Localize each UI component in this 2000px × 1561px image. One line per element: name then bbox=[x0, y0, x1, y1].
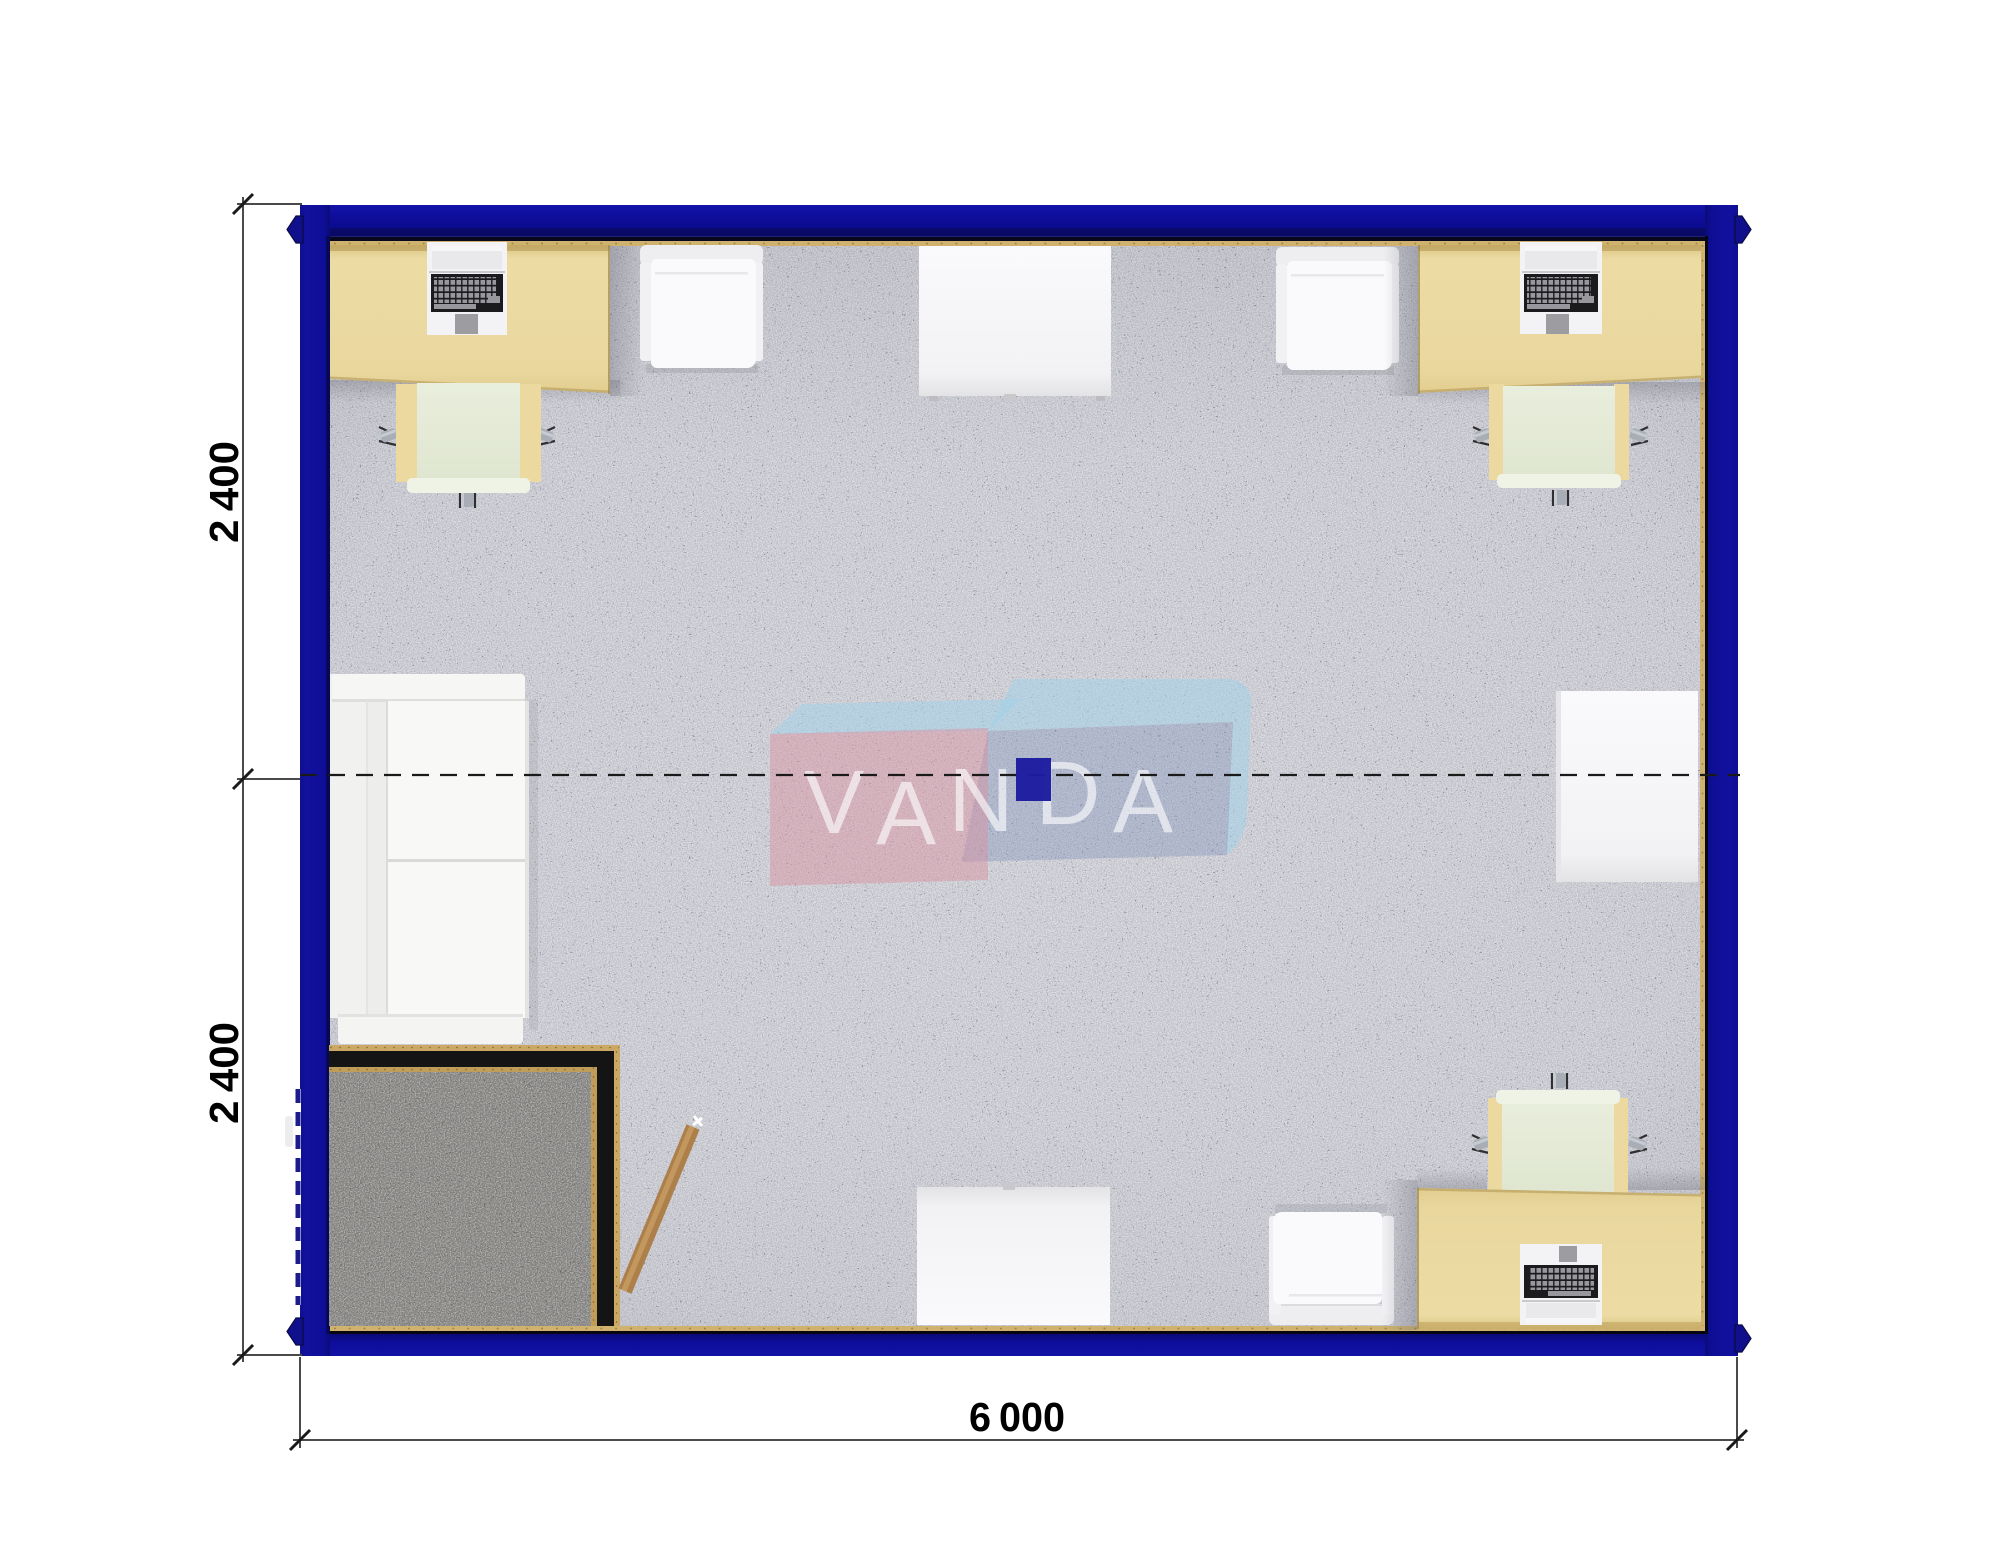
svg-text:2 400: 2 400 bbox=[201, 441, 247, 543]
svg-text:A: A bbox=[1113, 752, 1173, 852]
svg-text:A: A bbox=[876, 764, 936, 864]
svg-text:2 400: 2 400 bbox=[201, 1022, 247, 1124]
svg-text:V: V bbox=[804, 753, 864, 853]
svg-text:6 000: 6 000 bbox=[969, 1394, 1065, 1440]
svg-text:N: N bbox=[949, 751, 1014, 851]
